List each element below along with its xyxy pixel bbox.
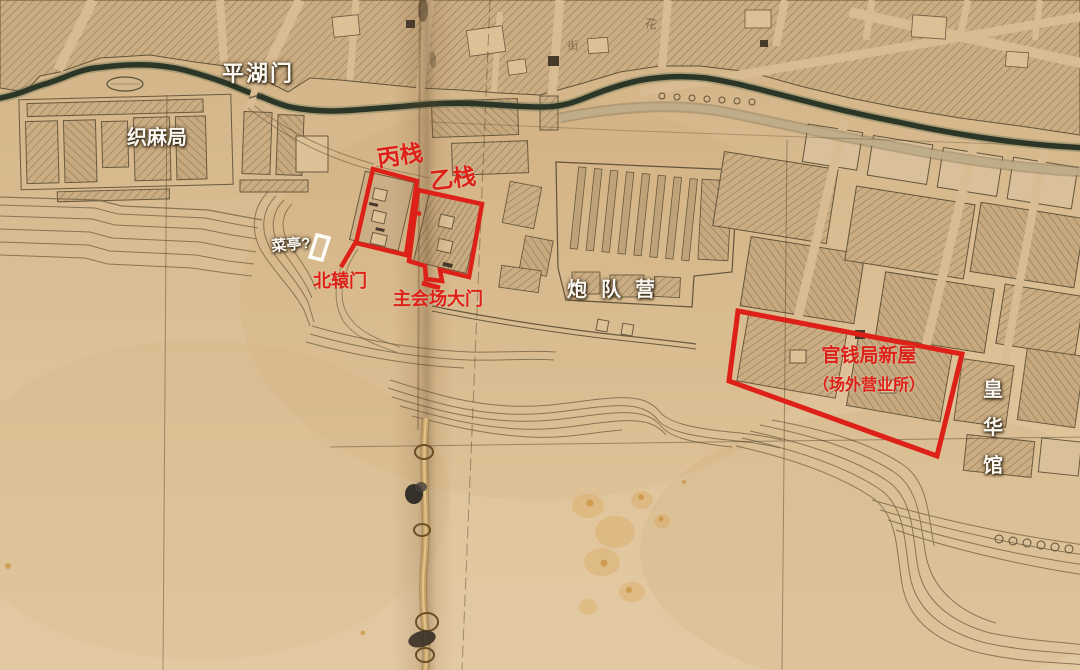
label-pinghumen: 平湖门 bbox=[222, 63, 294, 85]
label-main-gate: 主会场大门 bbox=[393, 290, 483, 308]
label-beiyuanmen: 北辕门 bbox=[313, 272, 367, 290]
label-faint-hua: 花 bbox=[644, 17, 658, 31]
label-huanghuaguan: 皇华馆 bbox=[981, 371, 1005, 485]
label-zhimaju: 织麻局 bbox=[127, 128, 187, 148]
label-guanqianju-line1: 官钱局新屋 bbox=[821, 347, 916, 366]
label-caiting: 菜亭? bbox=[271, 236, 311, 254]
map-canvas bbox=[0, 0, 1080, 670]
label-faint-jie: 街 bbox=[567, 41, 579, 53]
pond bbox=[107, 77, 143, 91]
label-bingzhan: 丙栈 bbox=[376, 141, 425, 170]
label-guanqianju-line2: （场外营业所） bbox=[813, 378, 925, 394]
label-yizhan: 乙栈 bbox=[429, 165, 477, 193]
label-paoduiying: 炮队营 bbox=[567, 280, 669, 300]
fold-seam bbox=[392, 0, 452, 670]
box-connector-line bbox=[412, 212, 421, 214]
historical-map: 平湖门 织麻局 丙栈 乙栈 菜亭? 北辕门 主会场大门 炮队营 官钱局新屋 （场… bbox=[0, 0, 1080, 670]
